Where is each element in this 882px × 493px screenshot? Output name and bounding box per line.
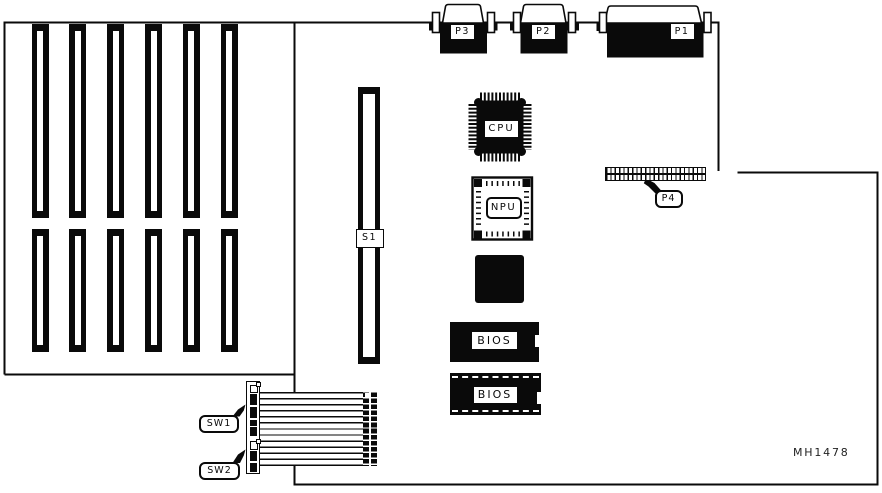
p4-callout: P4 bbox=[655, 190, 683, 208]
sw2-callout: SW2 bbox=[199, 462, 240, 481]
ribbon-connector bbox=[363, 391, 377, 466]
port-p3-label: P3 bbox=[451, 25, 474, 39]
figure-code: MH1478 bbox=[793, 446, 850, 459]
npu-label: NPU bbox=[486, 197, 522, 219]
sw2-callout-arrow bbox=[233, 450, 246, 464]
expansion-slot bbox=[183, 229, 200, 352]
bios-chip-1-label: BIOS bbox=[472, 332, 517, 349]
expansion-slot bbox=[183, 24, 200, 218]
port-p1-label: P1 bbox=[671, 24, 694, 39]
sw1-switch-block bbox=[250, 427, 258, 436]
expansion-slot bbox=[107, 24, 124, 218]
support-chip bbox=[475, 255, 524, 303]
motherboard-diagram: S1 P3 P2 P1 CPU NPU BIOS BIOS P4 SW1 SW2… bbox=[0, 0, 882, 493]
port-p2-label: P2 bbox=[532, 25, 555, 39]
expansion-slot bbox=[107, 229, 124, 352]
expansion-slot bbox=[221, 24, 238, 218]
expansion-slot bbox=[145, 24, 162, 218]
sw1-switch-block bbox=[250, 420, 258, 426]
expansion-slot bbox=[32, 229, 49, 352]
board-outline bbox=[5, 23, 878, 485]
s1-label: S1 bbox=[356, 229, 384, 248]
cpu-label: CPU bbox=[485, 121, 518, 137]
sw2-switch-block bbox=[250, 463, 258, 472]
sw1-corner-notch bbox=[256, 382, 262, 388]
bios-chip-2-notch bbox=[537, 392, 542, 404]
ribbon-connector-pin1 bbox=[365, 393, 370, 397]
expansion-slot bbox=[32, 24, 49, 218]
ribbon-cable bbox=[258, 392, 364, 466]
port-p1-graphic bbox=[597, 6, 712, 58]
sw1-switch-block bbox=[250, 394, 258, 406]
bios-chip-1-notch bbox=[535, 335, 540, 347]
expansion-slot bbox=[69, 24, 86, 218]
expansion-slot bbox=[69, 229, 86, 352]
sw1-switch-block bbox=[250, 407, 258, 419]
expansion-slot bbox=[145, 229, 162, 352]
expansion-slot bbox=[221, 229, 238, 352]
p4-connector bbox=[605, 167, 706, 181]
sw1-callout: SW1 bbox=[199, 415, 239, 433]
bios-chip-2-label: BIOS bbox=[474, 387, 517, 403]
sw2-corner-notch bbox=[256, 439, 262, 445]
sw2-switch-block bbox=[250, 451, 258, 462]
board-graphics bbox=[0, 0, 882, 493]
s1-slot bbox=[358, 87, 381, 364]
